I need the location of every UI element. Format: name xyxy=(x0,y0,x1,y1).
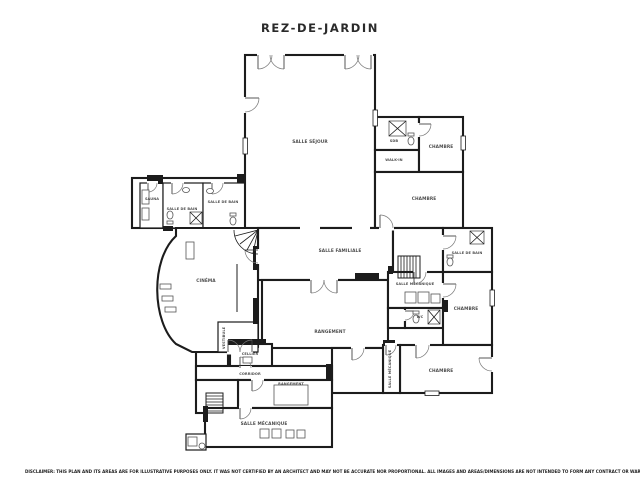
room-label-chambre-4: CHAMBRE xyxy=(429,368,454,374)
room-label-wc: WC xyxy=(417,315,424,319)
room-label-salle-mecanique-1: SALLE MÉCANIQUE xyxy=(396,281,435,286)
room-label-chambre-1: CHAMBRE xyxy=(429,144,454,150)
room-label-cellier: CELLIER xyxy=(242,352,259,356)
disclaimer-text: DISCLAIMER: THIS PLAN AND ITS AREAS ARE … xyxy=(25,470,640,475)
room-label-salle-familiale: SALLE FAMILIALE xyxy=(319,248,362,254)
room-label-sauna: SAUNA xyxy=(145,197,159,201)
room-label-vestibule: VESTIBULE xyxy=(222,326,226,349)
room-label-sdb: SDB xyxy=(390,139,399,143)
room-label-chambre-3: CHAMBRE xyxy=(454,306,479,312)
room-label-salle-de-bain-2: SALLE DE BAIN xyxy=(208,200,239,204)
room-label-salle-mecanique-2: SALLE MÉCANIQUE xyxy=(387,349,392,388)
room-label-chambre-2: CHAMBRE xyxy=(412,196,437,202)
room-label-walk-in: WALK-IN xyxy=(385,158,402,162)
room-label-salle-de-bain-3: SALLE DE BAIN xyxy=(452,251,483,255)
room-label-salle-de-bain-1: SALLE DE BAIN xyxy=(167,207,198,211)
room-label-rangement-2: RANGEMENT xyxy=(278,382,304,386)
room-label-corridor: CORRIDOR xyxy=(239,372,261,376)
floor-plan-page: REZ-DE-JARDIN xyxy=(0,0,640,480)
room-label-rangement-1: RANGEMENT xyxy=(314,329,345,335)
floor-plan-drawing: SALLE SÉJOUR SDB WALK-IN CHAMBRE CHAMBRE… xyxy=(0,0,640,480)
